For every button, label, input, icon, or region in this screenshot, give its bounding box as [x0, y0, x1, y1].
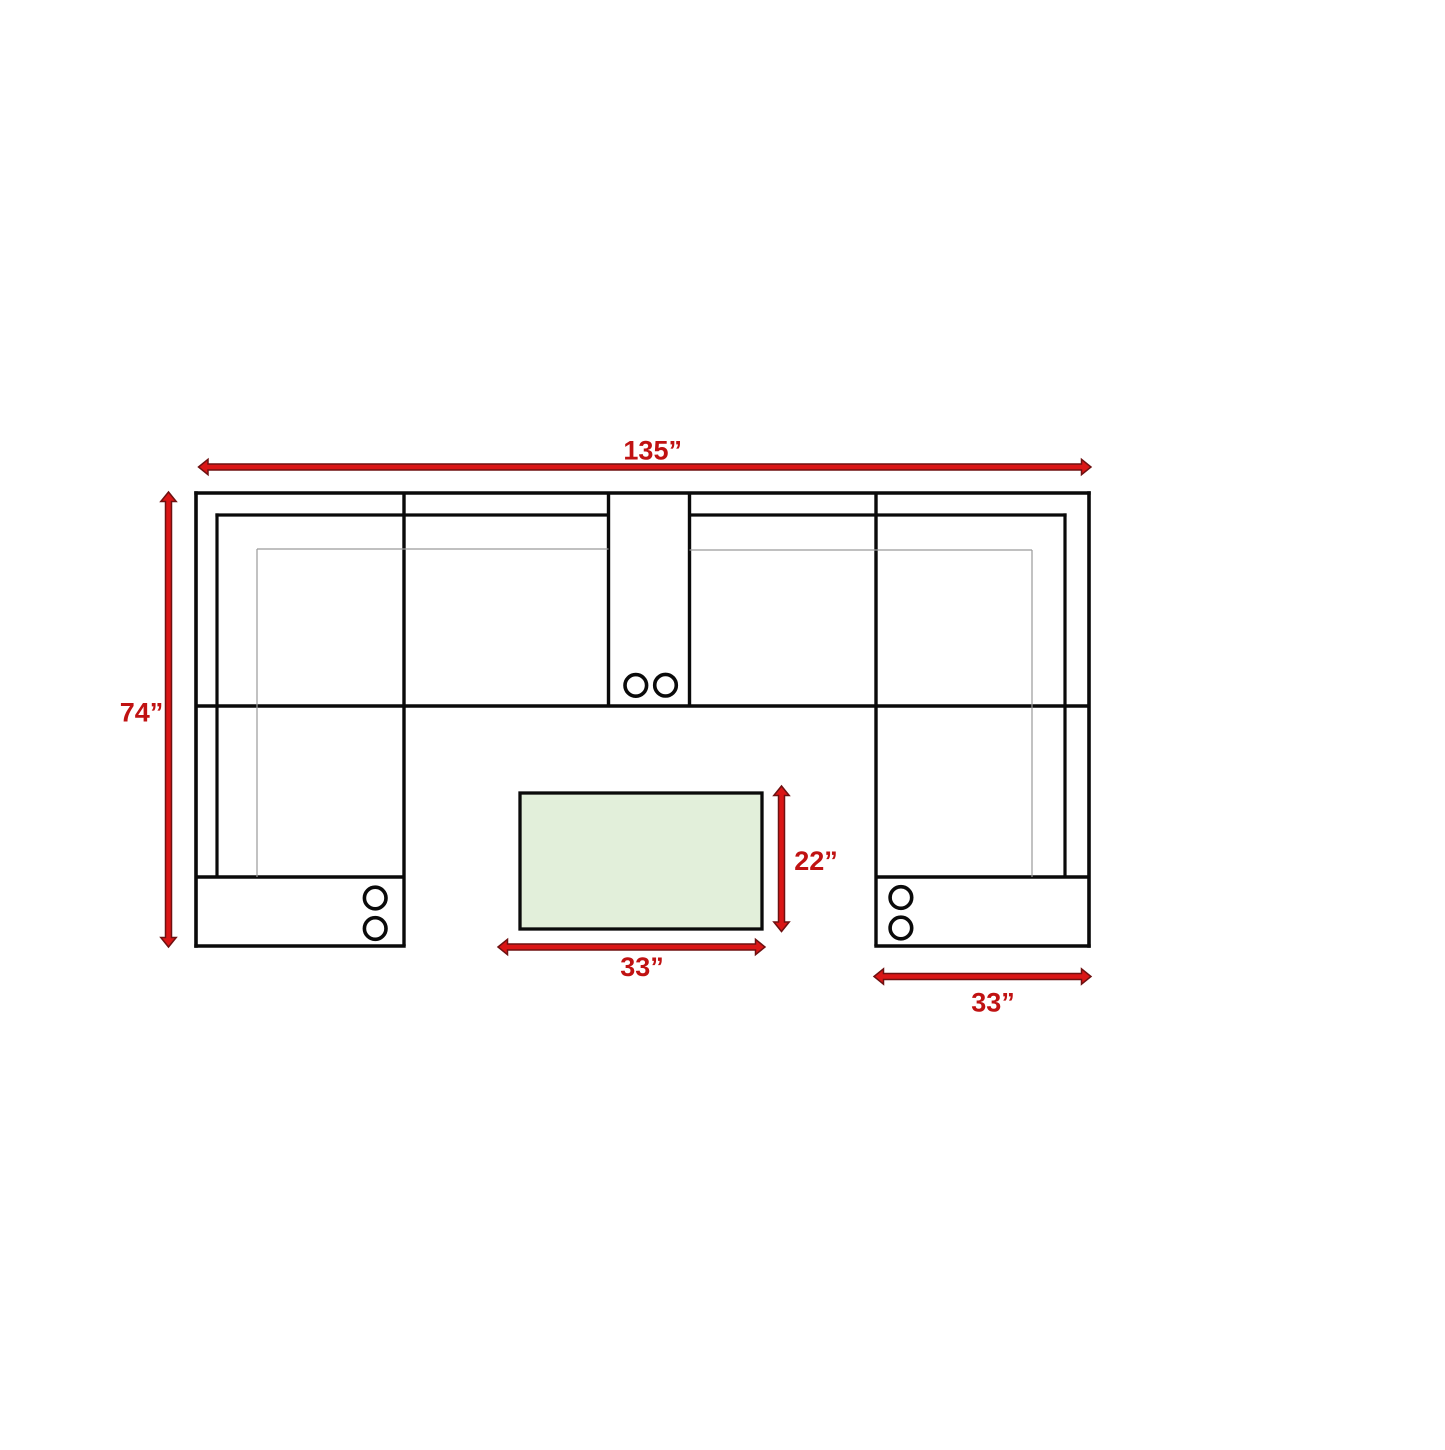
svg-text:74”: 74”: [120, 698, 164, 728]
svg-text:22”: 22”: [794, 846, 838, 876]
svg-text:33”: 33”: [620, 952, 664, 982]
svg-text:33”: 33”: [971, 988, 1015, 1018]
svg-text:135”: 135”: [623, 436, 682, 466]
